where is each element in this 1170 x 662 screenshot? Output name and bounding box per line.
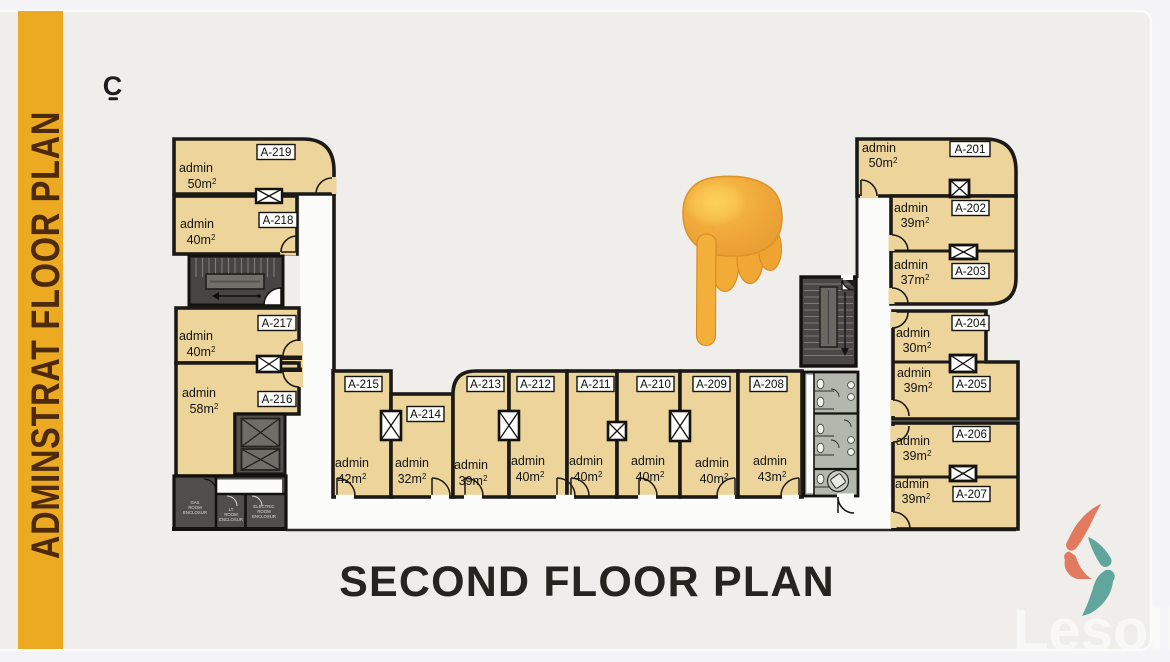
svg-text:A-204: A-204 bbox=[955, 318, 986, 330]
svg-text:A-205: A-205 bbox=[956, 379, 987, 391]
svg-text:admin: admin bbox=[179, 329, 213, 343]
svg-text:ENCLOSUR: ENCLOSUR bbox=[183, 510, 207, 515]
svg-text:A-217: A-217 bbox=[262, 318, 293, 330]
svg-text:A-219: A-219 bbox=[261, 147, 292, 159]
svg-text:admin: admin bbox=[395, 456, 429, 470]
svg-text:A-206: A-206 bbox=[956, 429, 987, 441]
svg-text:A-202: A-202 bbox=[955, 203, 986, 215]
svg-text:ENCLOSUR: ENCLOSUR bbox=[219, 517, 243, 522]
svg-text:A-210: A-210 bbox=[640, 379, 671, 391]
svg-text:A-211: A-211 bbox=[581, 379, 611, 391]
svg-text:admin: admin bbox=[179, 161, 213, 175]
svg-text:admin: admin bbox=[895, 477, 929, 491]
svg-text:A-216: A-216 bbox=[262, 394, 293, 406]
svg-text:A-209: A-209 bbox=[696, 379, 727, 391]
svg-text:admin: admin bbox=[896, 434, 930, 448]
svg-text:admin: admin bbox=[753, 454, 787, 468]
svg-text:ADMINSTRAT FLOOR PLAN: ADMINSTRAT FLOOR PLAN bbox=[23, 111, 68, 559]
svg-text:A-203: A-203 bbox=[955, 266, 986, 278]
svg-text:admin: admin bbox=[896, 326, 930, 340]
svg-text:admin: admin bbox=[180, 217, 214, 231]
svg-text:admin: admin bbox=[335, 456, 369, 470]
svg-text:admin: admin bbox=[862, 141, 896, 155]
svg-text:A-208: A-208 bbox=[753, 379, 784, 391]
svg-text:SECOND FLOOR PLAN: SECOND FLOOR PLAN bbox=[339, 558, 835, 606]
svg-text:admin: admin bbox=[631, 454, 665, 468]
svg-text:admin: admin bbox=[182, 386, 216, 400]
svg-text:A-201: A-201 bbox=[955, 144, 986, 156]
svg-text:A-215: A-215 bbox=[348, 379, 379, 391]
svg-text:admin: admin bbox=[894, 258, 928, 272]
svg-text:admin: admin bbox=[454, 458, 488, 472]
svg-text:admin: admin bbox=[894, 201, 928, 215]
svg-text:admin: admin bbox=[695, 456, 729, 470]
svg-text:admin: admin bbox=[569, 454, 603, 468]
svg-text:A-207: A-207 bbox=[956, 489, 987, 501]
svg-text:A-218: A-218 bbox=[263, 215, 294, 227]
svg-text:A-213: A-213 bbox=[470, 379, 501, 391]
svg-text:A-212: A-212 bbox=[520, 379, 551, 391]
svg-text:A-214: A-214 bbox=[410, 409, 441, 421]
svg-text:C: C bbox=[103, 71, 123, 101]
svg-text:ENCLOSUR: ENCLOSUR bbox=[252, 514, 276, 519]
svg-text:Lesoll: Lesoll bbox=[1013, 598, 1170, 662]
svg-text:admin: admin bbox=[511, 454, 545, 468]
svg-text:admin: admin bbox=[897, 366, 931, 380]
